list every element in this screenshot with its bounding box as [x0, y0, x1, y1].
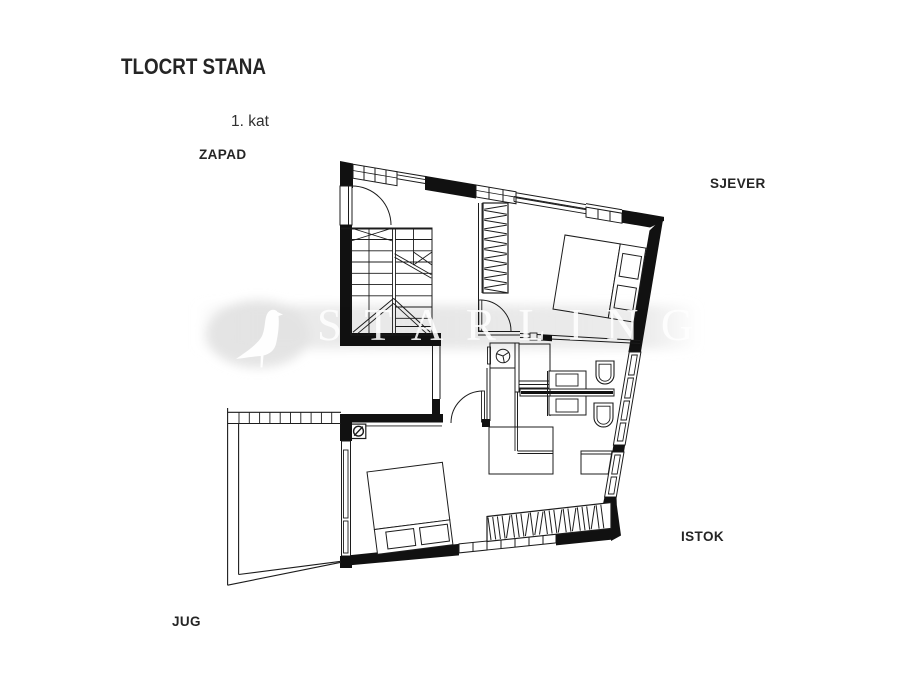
svg-text:1. kat: 1. kat	[231, 113, 270, 130]
svg-text:ISTOK: ISTOK	[681, 529, 724, 544]
svg-text:ZAPAD: ZAPAD	[199, 147, 247, 162]
svg-text:SJEVER: SJEVER	[710, 176, 766, 191]
svg-text:TLOCRT STANA: TLOCRT STANA	[121, 54, 266, 79]
svg-text:STARLING: STARLING	[317, 300, 716, 350]
svg-text:JUG: JUG	[172, 614, 201, 629]
